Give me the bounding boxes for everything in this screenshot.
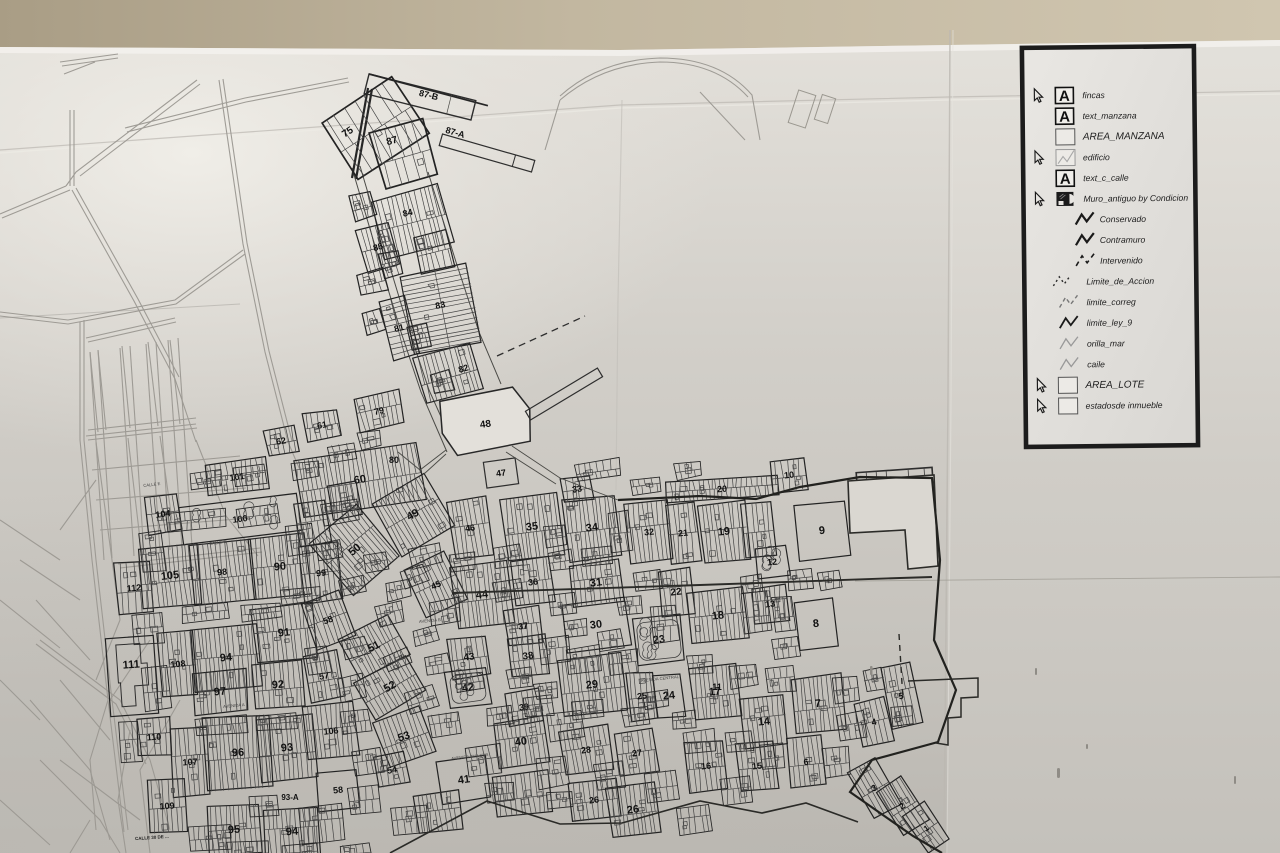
svg-text:58: 58 xyxy=(332,785,343,796)
svg-text:54: 54 xyxy=(386,764,398,776)
svg-text:A: A xyxy=(1059,88,1070,105)
svg-text:60: 60 xyxy=(353,473,367,487)
svg-text:7: 7 xyxy=(814,698,821,711)
svg-text:80: 80 xyxy=(389,455,399,465)
svg-text:99: 99 xyxy=(315,568,326,579)
svg-text:caile: caile xyxy=(1087,359,1105,369)
svg-text:94: 94 xyxy=(285,826,299,839)
svg-text:limite_correg: limite_correg xyxy=(1086,297,1136,308)
svg-text:8: 8 xyxy=(812,618,819,631)
svg-text:28: 28 xyxy=(580,744,591,755)
svg-text:46: 46 xyxy=(464,522,475,533)
svg-text:90: 90 xyxy=(273,560,286,573)
svg-text:37: 37 xyxy=(517,620,528,631)
svg-text:97: 97 xyxy=(213,685,226,698)
svg-text:text_c_calle: text_c_calle xyxy=(1083,173,1129,183)
svg-text:24: 24 xyxy=(662,689,676,702)
svg-text:22: 22 xyxy=(670,586,683,598)
svg-text:61: 61 xyxy=(316,419,328,431)
svg-text:Intervenido: Intervenido xyxy=(1100,255,1143,265)
svg-text:orilla_mar: orilla_mar xyxy=(1087,338,1126,348)
svg-text:93-A: 93-A xyxy=(281,793,299,802)
svg-text:6: 6 xyxy=(803,757,809,767)
svg-text:48: 48 xyxy=(479,418,492,431)
svg-text:107: 107 xyxy=(182,756,198,767)
svg-text:106: 106 xyxy=(323,725,339,737)
svg-text:12: 12 xyxy=(766,557,777,568)
svg-text:29: 29 xyxy=(585,678,599,691)
svg-text:35: 35 xyxy=(525,520,539,533)
svg-text:95: 95 xyxy=(227,824,240,837)
svg-text:20: 20 xyxy=(717,484,728,495)
svg-text:109: 109 xyxy=(159,800,175,811)
svg-text:40: 40 xyxy=(514,735,528,749)
svg-text:43: 43 xyxy=(463,651,476,664)
svg-text:96: 96 xyxy=(231,747,244,760)
svg-text:44: 44 xyxy=(475,588,489,602)
svg-text:30: 30 xyxy=(589,618,603,631)
svg-text:Muro_antiguo by Condicion: Muro_antiguo by Condicion xyxy=(1083,193,1188,204)
svg-text:AREA_LOTE: AREA_LOTE xyxy=(1084,379,1144,391)
svg-text:108: 108 xyxy=(170,658,186,669)
svg-text:104: 104 xyxy=(155,508,171,520)
svg-text:47: 47 xyxy=(495,467,506,478)
svg-text:estadosde inmueble: estadosde inmueble xyxy=(1086,400,1163,411)
svg-text:32: 32 xyxy=(643,527,654,538)
svg-text:A: A xyxy=(1060,171,1071,188)
svg-text:Contramuro: Contramuro xyxy=(1100,235,1146,245)
svg-text:10: 10 xyxy=(783,470,794,481)
svg-text:limite_ley_9: limite_ley_9 xyxy=(1087,317,1133,327)
svg-text:57: 57 xyxy=(318,670,330,682)
svg-text:27: 27 xyxy=(631,747,642,758)
svg-text:111: 111 xyxy=(122,658,140,671)
svg-text:text_manzana: text_manzana xyxy=(1083,110,1137,121)
svg-text:62: 62 xyxy=(275,435,287,447)
svg-text:AREA_MANZANA: AREA_MANZANA xyxy=(1082,131,1165,143)
svg-text:25: 25 xyxy=(636,691,647,702)
svg-text:Conservado: Conservado xyxy=(1100,214,1147,224)
svg-text:A: A xyxy=(1059,109,1070,126)
svg-text:112: 112 xyxy=(126,582,141,593)
svg-text:18: 18 xyxy=(711,609,724,622)
svg-text:16: 16 xyxy=(700,761,711,772)
svg-text:9: 9 xyxy=(818,525,825,538)
svg-text:36: 36 xyxy=(527,576,538,587)
svg-text:93: 93 xyxy=(280,741,293,754)
svg-text:21: 21 xyxy=(677,528,688,539)
svg-text:91: 91 xyxy=(277,626,290,639)
svg-text:92: 92 xyxy=(271,678,284,691)
svg-text:38: 38 xyxy=(522,650,535,662)
svg-text:19: 19 xyxy=(717,525,730,538)
svg-text:26: 26 xyxy=(588,794,599,805)
svg-text:79: 79 xyxy=(373,405,385,417)
svg-text:34: 34 xyxy=(585,521,599,535)
svg-text:33: 33 xyxy=(571,483,582,494)
svg-text:fincas: fincas xyxy=(1082,90,1105,100)
svg-text:15: 15 xyxy=(751,761,762,772)
svg-text:11: 11 xyxy=(712,682,722,692)
svg-text:14: 14 xyxy=(757,715,771,728)
svg-text:101: 101 xyxy=(229,471,245,483)
svg-text:26: 26 xyxy=(626,803,640,816)
svg-text:edificio: edificio xyxy=(1083,152,1110,162)
svg-text:94: 94 xyxy=(219,651,233,664)
svg-text:98: 98 xyxy=(216,567,227,578)
svg-text:Limite_de_Accion: Limite_de_Accion xyxy=(1086,276,1154,287)
svg-text:110: 110 xyxy=(146,732,161,743)
svg-text:13: 13 xyxy=(764,599,775,610)
svg-text:83: 83 xyxy=(434,299,446,311)
